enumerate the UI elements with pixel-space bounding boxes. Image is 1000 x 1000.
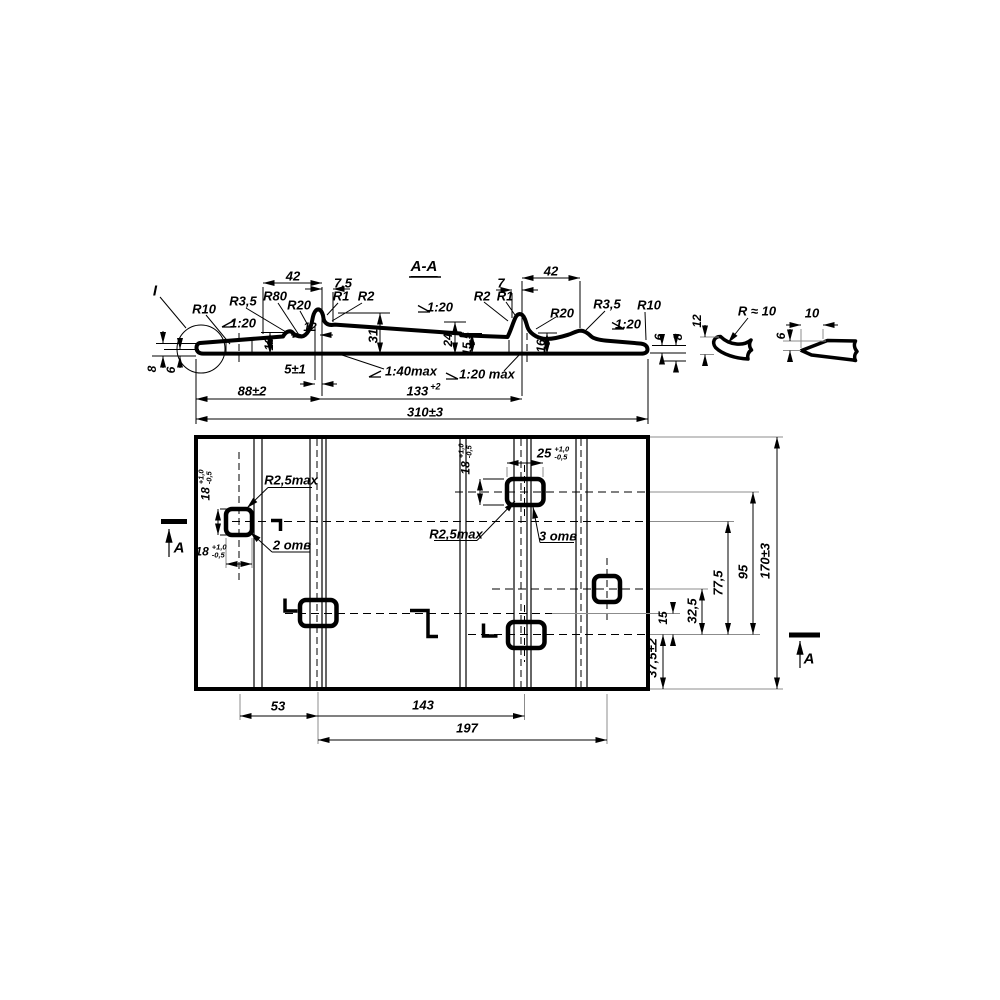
drawing-linework	[0, 0, 1000, 1000]
dim-42-left-label: 42	[286, 270, 300, 283]
dim-6-detail-label: 6	[775, 333, 787, 340]
radius-r80-label: R80	[263, 290, 287, 303]
slope-1-20-max-label: 1:20 max	[459, 368, 515, 381]
radius-r1-right-label: R1	[497, 290, 514, 303]
radius-approx-10-label: R ≈ 10	[738, 305, 776, 318]
dim-5-label: 5±1	[284, 363, 306, 376]
engineering-drawing-rail-baseplate: I R10 1:20 R3,5 R80 R20 42 7,5 R1 R2 12 …	[0, 0, 1000, 1000]
dim-77-5-label: 77,5	[712, 570, 725, 595]
plan-holes	[226, 479, 620, 648]
dim-15-5-label: 15,5	[461, 332, 473, 355]
dim-31-label: 31	[367, 329, 380, 343]
dim-42-right-label: 42	[544, 265, 558, 278]
radius-r2-right-label: R2	[474, 290, 491, 303]
dim-197-label: 197	[456, 722, 478, 735]
holes-3-label: 3 отв	[539, 530, 577, 543]
dim-32-5-label: 32,5	[686, 598, 699, 623]
dim-18-hole2-label: 18+1,0-0,5	[458, 443, 473, 474]
slope-1-20-right-label: 1:20	[615, 318, 641, 331]
dim-170-label: 170±3	[759, 543, 772, 579]
dim-16-right-label: 16	[535, 339, 547, 352]
dim-18-hole1-vertical-label: 18+1,0-0,5	[198, 469, 213, 500]
radius-r20-right-label: R20	[550, 307, 574, 320]
dim-310-label: 310±3	[407, 406, 443, 419]
radius-r10-right-label: R10	[637, 299, 661, 312]
dim-16-left-label: 16	[263, 337, 275, 350]
dim-24-label: 24	[442, 333, 454, 346]
detail-hook-profile	[714, 337, 752, 360]
dim-8-right-label: 8	[672, 334, 684, 341]
radius-r20-left-label: R20	[287, 299, 311, 312]
slope-1-20-left-label: 1:20	[230, 317, 256, 330]
radius-r35-left-label: R3,5	[229, 295, 256, 308]
detail-beak-profile	[802, 341, 858, 361]
holes-2-label: 2 отв	[273, 539, 311, 552]
section-title: A-A	[411, 259, 438, 277]
dim-10-detail-label: 10	[805, 307, 819, 320]
dim-12-peak-label: 12	[303, 321, 316, 333]
radius-r35-right-label: R3,5	[593, 298, 620, 311]
radius-r10-left-label: R10	[192, 303, 216, 316]
dim-143-label: 143	[412, 699, 434, 712]
slope-1-20-center-label: 1:20	[427, 301, 453, 314]
radius-r1-left-label: R1	[333, 290, 350, 303]
radius-r25max-left-label: R2,5max	[264, 474, 317, 487]
dim-88-label: 88±2	[238, 385, 267, 398]
radius-r2-left-label: R2	[358, 290, 375, 303]
slope-1-40-max-label: 1:40max	[385, 365, 437, 378]
dim-133-label: 133+2	[407, 385, 440, 398]
section-letter-left: A	[174, 541, 185, 556]
dim-6-right-label: 6	[653, 334, 665, 341]
dim-25-label: 25+1,0-0,5	[537, 446, 569, 461]
section-letter-right: A	[804, 652, 815, 667]
dim-15-label: 15	[657, 611, 669, 624]
dim-53-label: 53	[271, 700, 285, 713]
dim-12-detail-label: 12	[691, 314, 703, 327]
dim-6-left-label: 6	[165, 367, 177, 374]
dim-8-left-label: 8	[146, 366, 158, 373]
dim-95-label: 95	[737, 565, 750, 579]
radius-r25max-mid-label: R2,5max	[429, 528, 482, 541]
dim-37-5-label: 37,5±2	[646, 638, 659, 678]
detail-mark-label: I	[153, 284, 157, 299]
dim-18-hole1-horizontal-label: 18+1,0-0,5	[195, 544, 226, 559]
